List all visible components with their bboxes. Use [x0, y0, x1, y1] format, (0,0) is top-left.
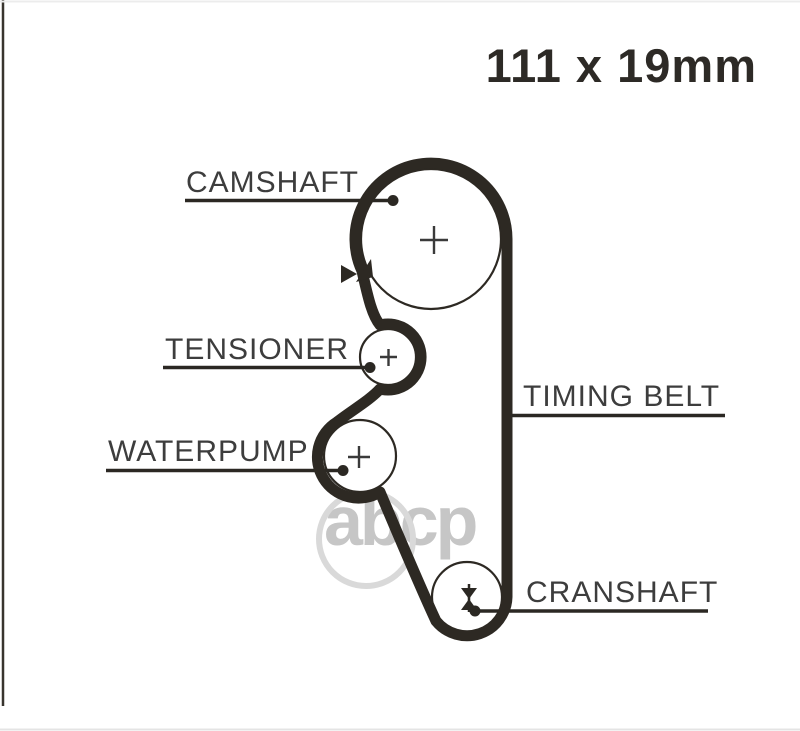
waterpump-label: WATERPUMP [108, 437, 309, 467]
diagram-stage: abcp [0, 0, 800, 731]
camshaft-leader-dot [388, 195, 399, 206]
belt-size-label: 111 x 19mm [486, 40, 757, 92]
rotation-arrow-icon [341, 265, 357, 283]
waterpump-leader-dot [338, 465, 349, 476]
tensioner-label: TENSIONER [165, 335, 349, 365]
camshaft-label: CAMSHAFT [186, 168, 359, 198]
timing-belt-diagram [0, 0, 800, 731]
crankshaft-label: CRANSHAFT [526, 578, 718, 608]
tensioner-leader-dot [365, 362, 376, 373]
timing-belt-label: TIMING BELT [523, 382, 720, 412]
